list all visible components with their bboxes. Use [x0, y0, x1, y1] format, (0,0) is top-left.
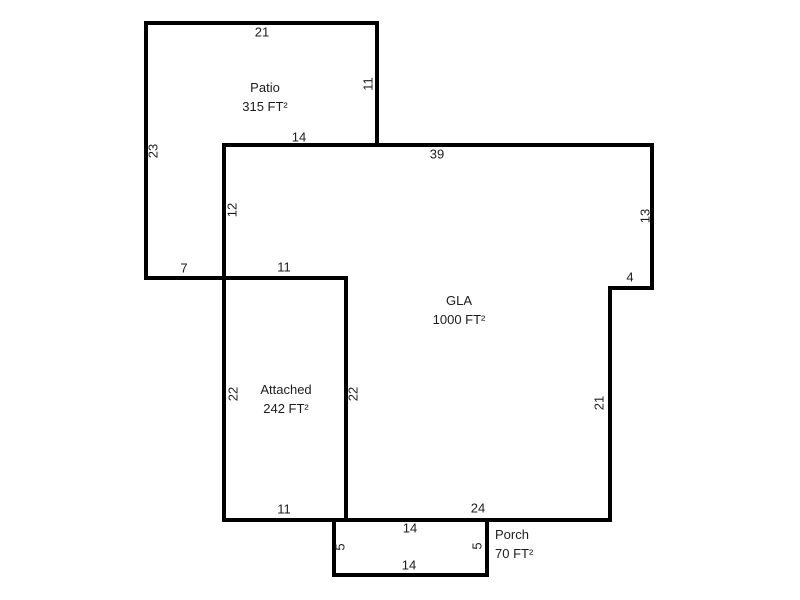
attached-name: Attached — [260, 380, 311, 399]
dimension-patio-lower-bottom: 7 — [180, 262, 187, 275]
dimension-gla-top: 39 — [430, 148, 444, 161]
dimension-attached-right: 22 — [347, 387, 360, 401]
gla-area: 1000 FT² — [433, 310, 486, 329]
dimension-gla-lower-right: 21 — [593, 396, 606, 410]
area-label-porch: Porch 70 FT² — [495, 525, 533, 563]
dimension-patio-bottom: 14 — [292, 131, 306, 144]
area-label-gla: GLA 1000 FT² — [433, 291, 486, 329]
dimension-attached-bottom: 11 — [277, 503, 291, 516]
floorplan-walls — [0, 0, 800, 600]
area-label-patio: Patio 315 FT² — [242, 78, 288, 116]
porch-name: Porch — [495, 525, 533, 544]
dimension-patio-top: 21 — [255, 26, 269, 39]
patio-outline — [146, 23, 377, 278]
dimension-patio-right: 11 — [362, 77, 375, 91]
dimension-gla-bottom: 24 — [471, 502, 485, 515]
porch-area: 70 FT² — [495, 544, 533, 563]
dimension-porch-top: 14 — [403, 522, 417, 535]
floorplan-sketch: 21 11 23 14 7 39 12 13 4 21 24 11 22 22 … — [0, 0, 800, 600]
dimension-patio-left: 23 — [147, 144, 160, 158]
dimension-gla-upper-right: 13 — [639, 209, 652, 223]
dimension-gla-upper-left: 12 — [226, 203, 239, 217]
dimension-attached-top: 11 — [277, 261, 291, 274]
dimension-porch-left: 5 — [334, 543, 347, 550]
gla-name: GLA — [433, 291, 486, 310]
dimension-gla-step: 4 — [626, 271, 633, 284]
patio-name: Patio — [242, 78, 288, 97]
patio-area: 315 FT² — [242, 97, 288, 116]
attached-area: 242 FT² — [260, 399, 311, 418]
gla-outline — [224, 145, 652, 520]
dimension-porch-bottom: 14 — [402, 559, 416, 572]
dimension-porch-right: 5 — [471, 542, 484, 549]
dimension-attached-left: 22 — [227, 387, 240, 401]
area-label-attached: Attached 242 FT² — [260, 380, 311, 418]
